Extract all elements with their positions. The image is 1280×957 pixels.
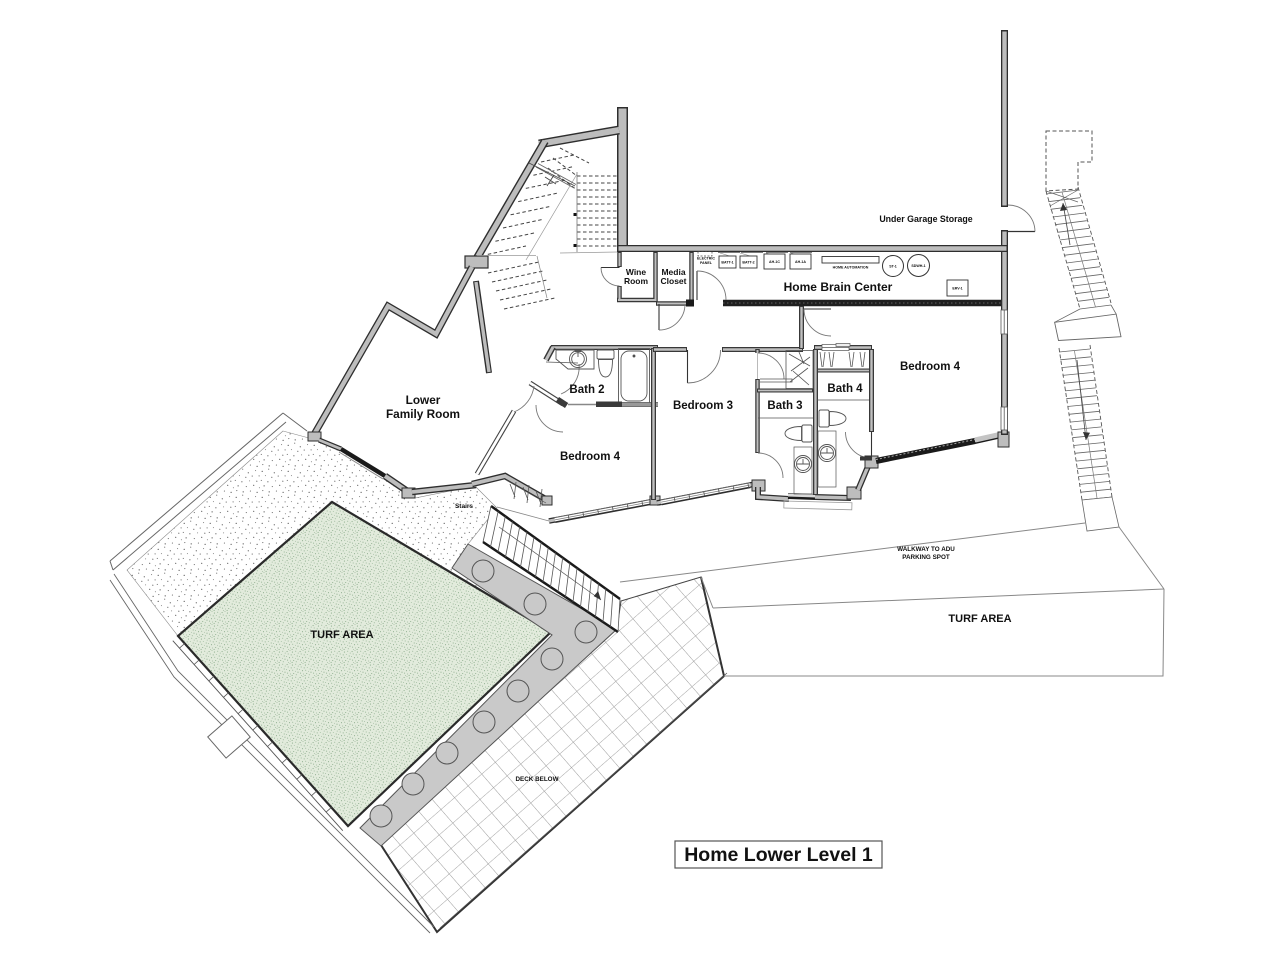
svg-text:BATT-2: BATT-2 [742,261,754,265]
svg-text:Bath 2: Bath 2 [569,384,604,396]
svg-text:Home Brain Center: Home Brain Center [784,280,893,294]
svg-text:PARKING SPOT: PARKING SPOT [902,554,950,561]
svg-text:HOME AUTOMATION: HOME AUTOMATION [833,266,869,270]
svg-text:Room: Room [624,276,649,286]
svg-text:SDWH-1: SDWH-1 [911,264,925,268]
svg-text:Stairs: Stairs [455,503,473,510]
svg-text:ST-1: ST-1 [889,265,897,269]
svg-text:Under Garage Storage: Under Garage Storage [879,214,972,224]
svg-text:TURF AREA: TURF AREA [310,629,373,641]
svg-text:AH-1A: AH-1A [795,260,806,264]
svg-text:ELECTRIC: ELECTRIC [697,257,715,261]
svg-text:Bedroom 4: Bedroom 4 [560,451,621,463]
svg-text:DECK BELOW: DECK BELOW [515,776,558,783]
svg-text:Lower: Lower [406,393,441,407]
svg-text:Bath 4: Bath 4 [827,383,863,395]
svg-text:Bath 3: Bath 3 [767,400,802,412]
svg-text:ERV-1: ERV-1 [952,287,962,291]
svg-text:Bedroom 3: Bedroom 3 [673,400,733,412]
svg-text:AH-1C: AH-1C [769,260,780,264]
svg-text:BATT-1: BATT-1 [721,261,733,265]
svg-text:PANEL: PANEL [700,261,713,265]
svg-text:Home Lower Level 1: Home Lower Level 1 [684,844,873,866]
svg-text:WALKWAY TO ADU: WALKWAY TO ADU [897,546,955,553]
svg-text:Bedroom 4: Bedroom 4 [900,361,961,373]
svg-text:Family Room: Family Room [386,407,460,421]
svg-text:Closet: Closet [661,276,687,286]
svg-text:TURF AREA: TURF AREA [948,613,1011,625]
